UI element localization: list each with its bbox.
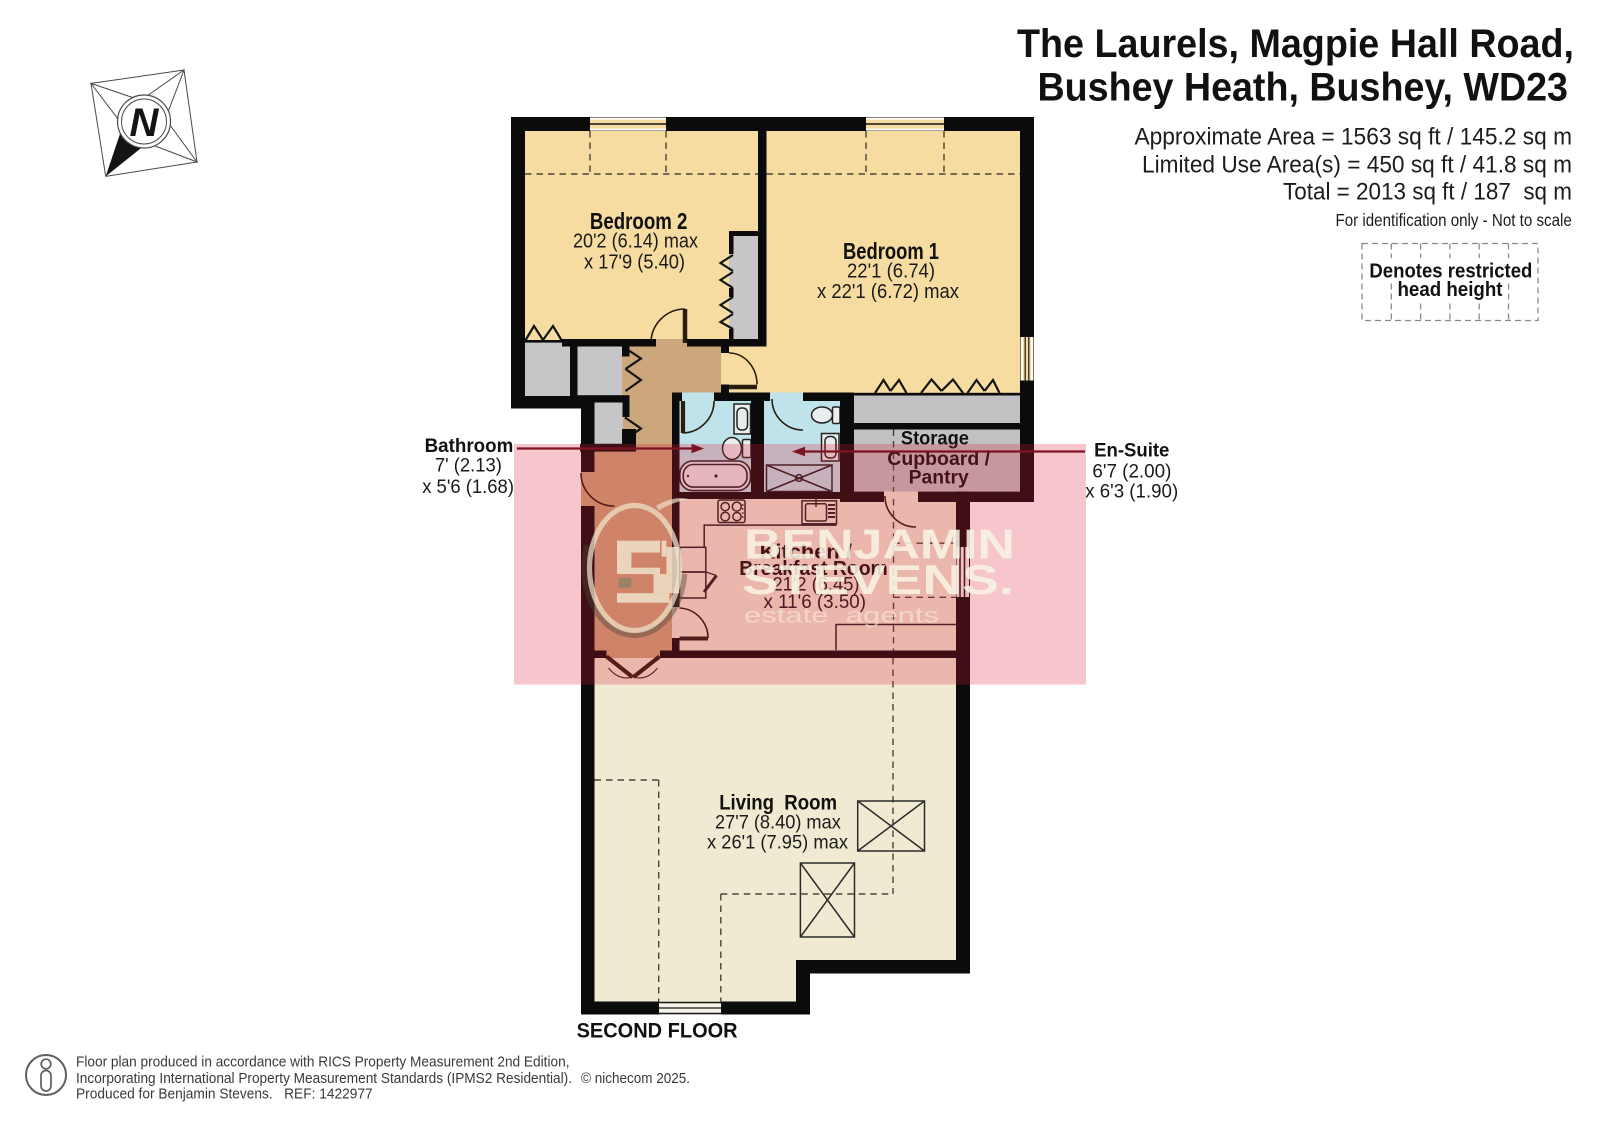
svg-text:N: N [130,101,160,145]
svg-text:Produced for Benjamin Stevens.: Produced for Benjamin Stevens. REF: 1422… [76,1086,373,1103]
svg-text:Approximate Area = 1563 sq ft: Approximate Area = 1563 sq ft / 145.2 sq… [1135,124,1573,151]
svg-text:The Laurels, Magpie Hall Road,: The Laurels, Magpie Hall Road, [1017,22,1574,66]
svg-text:7' (2.13): 7' (2.13) [435,455,502,477]
svg-text:For identification only - Not: For identification only - Not to scale [1336,210,1572,230]
svg-text:6'7 (2.00): 6'7 (2.00) [1092,460,1171,482]
svg-text:x 22'1 (6.72) max: x 22'1 (6.72) max [817,281,959,303]
svg-text:© nichecom 2025.: © nichecom 2025. [581,1070,690,1087]
svg-text:STEVENS.: STEVENS. [742,556,1014,603]
svg-text:x 26'1 (7.95) max: x 26'1 (7.95) max [707,832,848,854]
svg-text:estate agents: estate agents [744,605,939,628]
svg-text:x 17'9 (5.40): x 17'9 (5.40) [584,252,685,274]
svg-text:20'2 (6.14) max: 20'2 (6.14) max [573,231,698,253]
svg-text:head height: head height [1398,279,1503,301]
svg-text:En-Suite: En-Suite [1094,439,1169,461]
svg-text:Incorporating International Pr: Incorporating International Property Mea… [76,1070,572,1087]
svg-text:27'7 (8.40) max: 27'7 (8.40) max [715,812,841,834]
svg-text:Limited Use Area(s) = 450 sq f: Limited Use Area(s) = 450 sq ft / 41.8 s… [1142,152,1572,179]
svg-text:Total = 2013 sq ft / 187 sq m: Total = 2013 sq ft / 187 sq m [1283,178,1572,205]
svg-text:Bushey Heath, Bushey, WD23: Bushey Heath, Bushey, WD23 [1038,66,1569,110]
svg-text:x 6'3 (1.90): x 6'3 (1.90) [1085,481,1178,503]
svg-text:Floor plan produced in accorda: Floor plan produced in accordance with R… [76,1054,570,1071]
svg-text:22'1 (6.74): 22'1 (6.74) [847,261,935,283]
svg-text:SECOND FLOOR: SECOND FLOOR [577,1019,738,1043]
svg-text:x 5'6 (1.68): x 5'6 (1.68) [422,476,514,498]
